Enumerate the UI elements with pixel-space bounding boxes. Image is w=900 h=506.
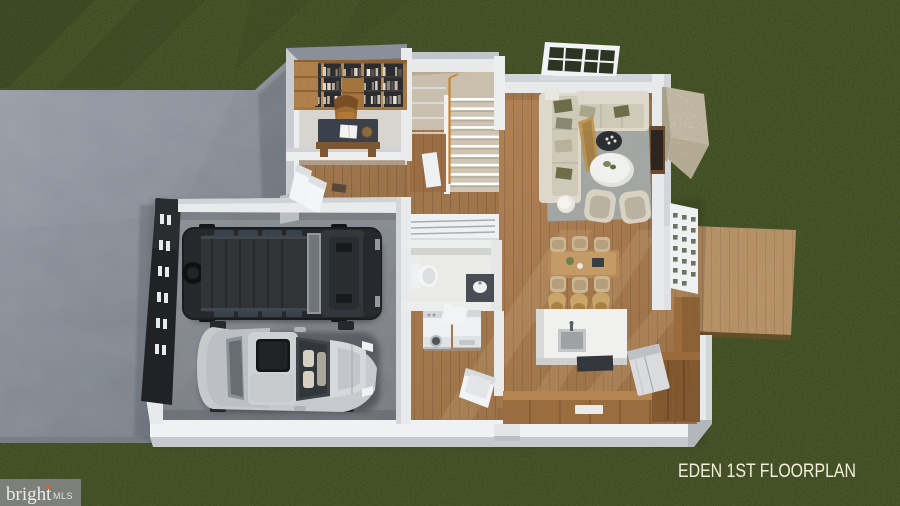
svg-text:MLS: MLS: [53, 491, 73, 501]
svg-text:EDEN 1ST FLOORPLAN: EDEN 1ST FLOORPLAN: [678, 461, 856, 482]
svg-text:bright: bright: [6, 484, 52, 505]
